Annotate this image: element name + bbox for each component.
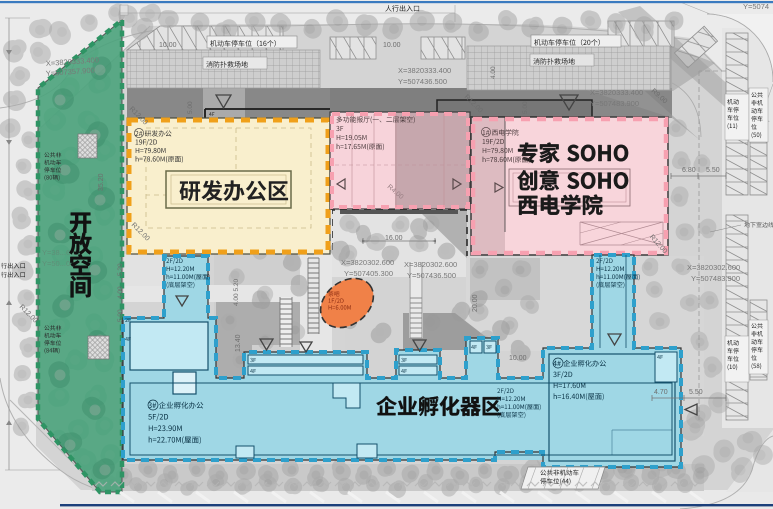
svg-text:4.00: 4.00 (117, 286, 124, 299)
svg-text:6.80: 6.80 (682, 167, 696, 174)
svg-text:Y=507436.500: Y=507436.500 (398, 77, 447, 86)
svg-text:X=3820333.400: X=3820333.400 (590, 88, 643, 97)
svg-text:Y=5074: Y=5074 (743, 2, 769, 11)
svg-text:10.00: 10.00 (159, 42, 177, 49)
svg-text:X=3820302.600: X=3820302.600 (687, 263, 740, 272)
svg-text:4.00 5.20: 4.00 5.20 (233, 279, 240, 306)
svg-text:20.00: 20.00 (472, 294, 479, 312)
svg-text:X=3820302.600: X=3820302.600 (341, 258, 394, 267)
svg-text:4.70: 4.70 (654, 389, 668, 396)
svg-text:5.50: 5.50 (689, 389, 703, 396)
svg-text:Y=507436.500: Y=507436.500 (407, 271, 456, 280)
svg-text:35.20: 35.20 (98, 173, 105, 191)
svg-text:13.40: 13.40 (235, 334, 242, 352)
svg-text:X=3820333.400: X=3820333.400 (398, 66, 451, 75)
svg-text:5.50: 5.50 (706, 167, 720, 174)
svg-text:5.00: 5.00 (522, 101, 529, 114)
svg-text:5.00: 5.00 (187, 101, 194, 114)
svg-text:10.00: 10.00 (383, 42, 401, 49)
svg-text:Y=507483.900: Y=507483.900 (691, 274, 740, 283)
svg-text:5.00: 5.00 (117, 309, 124, 322)
svg-text:10.00: 10.00 (509, 355, 527, 362)
svg-text:4.00: 4.00 (490, 66, 497, 79)
svg-text:Y=50...00: Y=50...00 (42, 259, 74, 268)
svg-text:5.20: 5.20 (117, 263, 124, 276)
svg-text:X=3820302.600: X=3820302.600 (404, 260, 457, 269)
svg-text:Y=507483.900: Y=507483.900 (590, 99, 639, 108)
svg-text:Y=507405.300: Y=507405.300 (344, 269, 393, 278)
